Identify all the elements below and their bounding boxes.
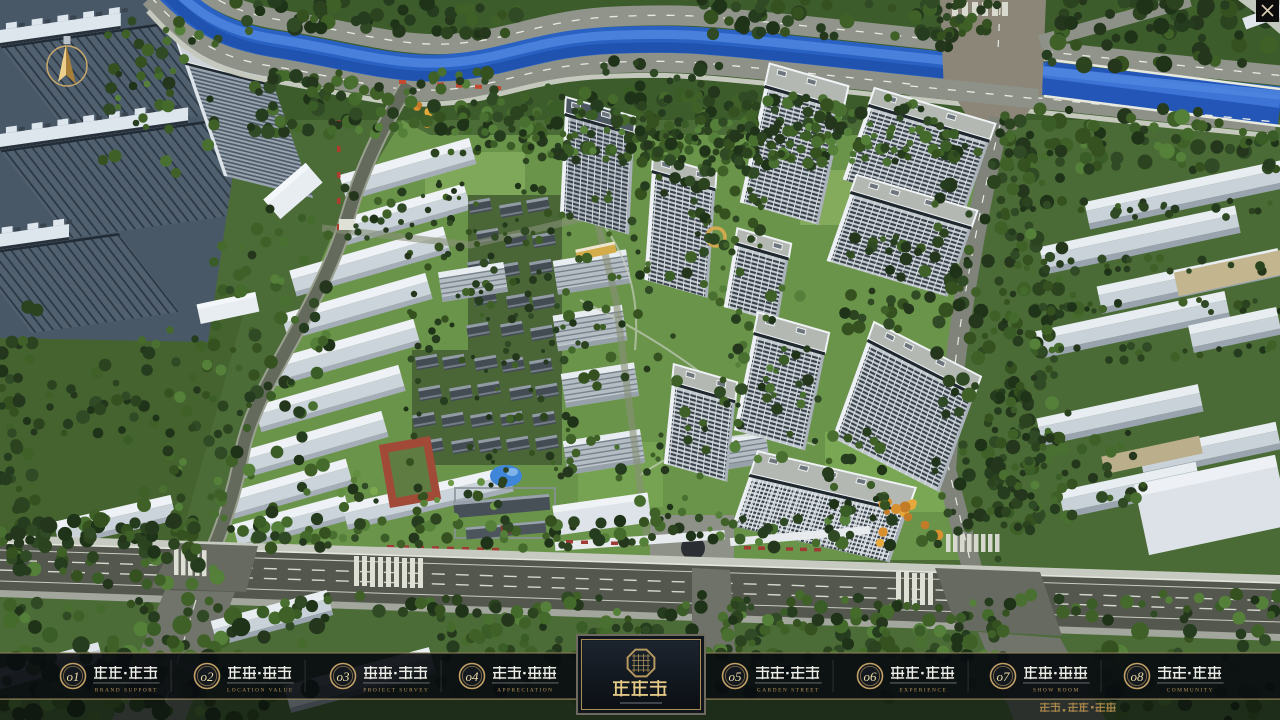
svg-text:LOCATION VALUE: LOCATION VALUE (227, 688, 294, 694)
svg-text:SHOW ROOM: SHOW ROOM (1033, 688, 1080, 694)
svg-text:o6: o6 (864, 669, 878, 684)
svg-text:PROJECT SURVEY: PROJECT SURVEY (363, 688, 429, 694)
svg-text:o1: o1 (67, 669, 80, 684)
svg-text:o7: o7 (997, 669, 1011, 684)
svg-text:GARDEN STREET: GARDEN STREET (757, 688, 820, 694)
svg-text:o8: o8 (1131, 669, 1145, 684)
svg-text:o3: o3 (337, 669, 351, 684)
svg-text:BRAND SUPPORT: BRAND SUPPORT (95, 688, 158, 694)
svg-text:o5: o5 (729, 669, 743, 684)
svg-text:COMMUNITY: COMMUNITY (1167, 688, 1214, 694)
svg-text:EXPERIENCE: EXPERIENCE (899, 688, 947, 694)
svg-text:o2: o2 (201, 669, 215, 684)
svg-text:o4: o4 (466, 669, 480, 684)
svg-text:APPRECIATION: APPRECIATION (497, 688, 553, 694)
